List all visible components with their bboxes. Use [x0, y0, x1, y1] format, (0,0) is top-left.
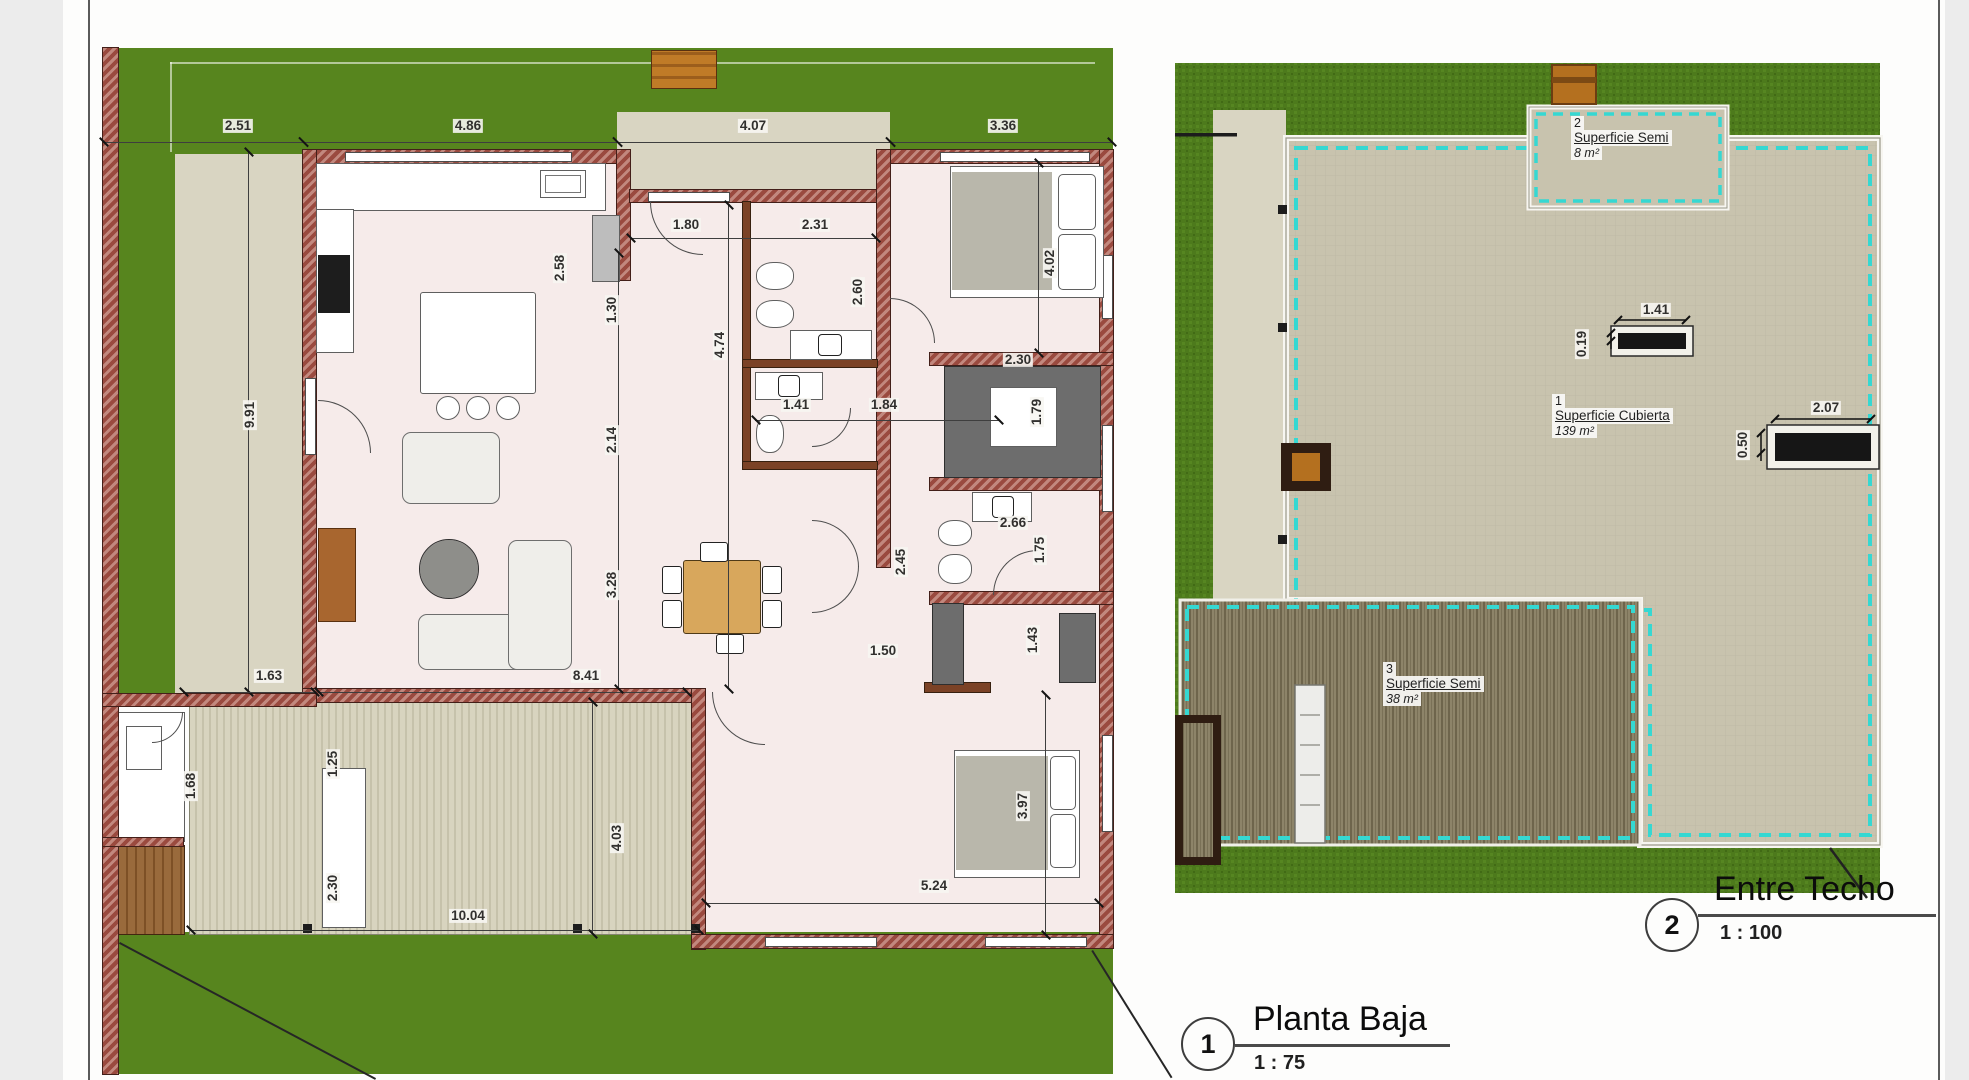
dim-line-841 — [318, 692, 688, 693]
view-scale: 1 : 100 — [1720, 922, 1782, 945]
roof-notch — [1529, 107, 1727, 208]
dim-line-entry — [630, 238, 877, 239]
floor-plan-planta-baja — [0, 0, 1170, 1080]
deck-planter-inner — [1183, 723, 1213, 857]
sheet-border-right — [1938, 0, 1940, 1080]
wall-hall-right — [877, 150, 890, 567]
dining-chair — [662, 600, 682, 628]
view-marker-2: 2 — [1645, 898, 1699, 952]
roof-post — [1278, 323, 1287, 332]
roof-post — [1278, 535, 1287, 544]
wall-closet-bottom — [930, 478, 1113, 490]
dim-line-deck-v — [592, 702, 593, 934]
view-title-rule — [1235, 1044, 1450, 1047]
console-table — [318, 528, 356, 622]
toilet-symbol — [756, 262, 794, 290]
view-scale: 1 : 75 — [1254, 1052, 1305, 1075]
dim-line-walkway — [248, 152, 249, 692]
property-line — [170, 62, 172, 152]
partition-bath-bottom — [743, 462, 877, 469]
planter-box — [651, 50, 717, 89]
side-walkway — [175, 154, 303, 694]
dim-line-bed1-v — [1038, 163, 1039, 353]
stool — [436, 396, 460, 420]
window-bedroom2-bottom — [765, 937, 877, 947]
wardrobe — [933, 604, 963, 684]
partition-bath-mid — [743, 360, 877, 367]
pillow — [1058, 174, 1096, 230]
sink-symbol — [778, 375, 800, 397]
wall-bedroom2-left — [692, 689, 705, 949]
property-line — [170, 62, 1095, 64]
l-sofa-chaise — [508, 540, 572, 670]
window-kitchen — [345, 152, 572, 162]
dim-line-163 — [183, 692, 316, 693]
bed-duvet — [956, 756, 1048, 870]
dim-line-living-right — [618, 253, 619, 689]
coffee-table — [420, 540, 478, 598]
wall-closet-top — [930, 353, 1113, 365]
roof-post — [1278, 205, 1287, 214]
view-title-text: Entre Techo — [1714, 870, 1895, 909]
dining-chair — [716, 634, 744, 654]
dim-line-bath — [755, 420, 1000, 421]
pillow — [1058, 234, 1096, 290]
wall-utility-bottom — [103, 838, 183, 846]
sink-symbol — [992, 496, 1014, 518]
window-bedroom2-bottom2 — [985, 937, 1087, 947]
pergola-post — [303, 924, 312, 933]
stool — [496, 396, 520, 420]
boundary-wall-left — [103, 48, 118, 1074]
deck-runner — [1295, 685, 1325, 843]
view-title-text: Planta Baja — [1253, 1000, 1427, 1039]
skylight — [1775, 433, 1871, 461]
dining-table — [683, 560, 761, 634]
toilet-symbol — [938, 520, 972, 546]
roof-deck — [1180, 600, 1640, 845]
roof-planter-top — [1552, 65, 1596, 104]
dining-chair — [700, 542, 728, 562]
lawn-left-strip — [118, 154, 175, 694]
side-gate — [118, 845, 185, 935]
roof-planter-band — [1552, 77, 1596, 83]
bed-duvet — [952, 172, 1052, 290]
dim-line-bedroom2 — [705, 903, 1100, 904]
roof-walkway — [1213, 110, 1286, 600]
view-marker-1: 1 — [1181, 1017, 1235, 1071]
wood-deck — [190, 702, 700, 934]
bidet-symbol — [756, 300, 794, 328]
pillow — [1050, 756, 1076, 810]
window-living-left — [305, 378, 316, 455]
dim-line-top — [103, 142, 1113, 143]
pergola-post — [573, 924, 582, 933]
loveseat-sofa — [402, 432, 500, 504]
front-door-opening — [648, 192, 730, 202]
dining-chair — [762, 566, 782, 594]
sink-symbol — [818, 334, 842, 356]
skylight — [1618, 333, 1686, 349]
window-bedroom1 — [940, 152, 1090, 162]
partition-bath-left — [743, 202, 750, 469]
wardrobe — [1060, 614, 1095, 682]
lawn-bottom — [118, 932, 1113, 1074]
partition-vestibule — [925, 683, 990, 692]
entry-porch — [617, 112, 890, 192]
roof-plan-entre-techo — [1175, 55, 1885, 905]
gate-line — [1175, 133, 1237, 137]
wall-living-bottom — [303, 689, 705, 702]
view-title-rule — [1698, 914, 1936, 917]
window-bedroom2-right — [1102, 735, 1113, 832]
dining-chair — [762, 600, 782, 628]
deck-bench — [322, 768, 366, 928]
cad-sheet-view: { "sheet": {"background": "#fdfdfc", "bo… — [0, 0, 1969, 1080]
kitchen-sink — [540, 170, 586, 198]
dim-line-bed2-v — [1045, 695, 1046, 935]
dining-chair — [662, 566, 682, 594]
bidet-symbol — [938, 554, 972, 584]
stool — [466, 396, 490, 420]
dim-line-deck — [190, 930, 700, 931]
pillow — [1050, 814, 1076, 868]
dim-line-hall — [728, 205, 729, 689]
kitchen-island — [420, 292, 536, 394]
wall-utility-top — [103, 694, 316, 706]
cooktop — [318, 255, 350, 313]
roof-planter-left-inner — [1292, 453, 1320, 481]
closet-interior — [990, 387, 1057, 447]
window-closet-right — [1102, 425, 1113, 512]
